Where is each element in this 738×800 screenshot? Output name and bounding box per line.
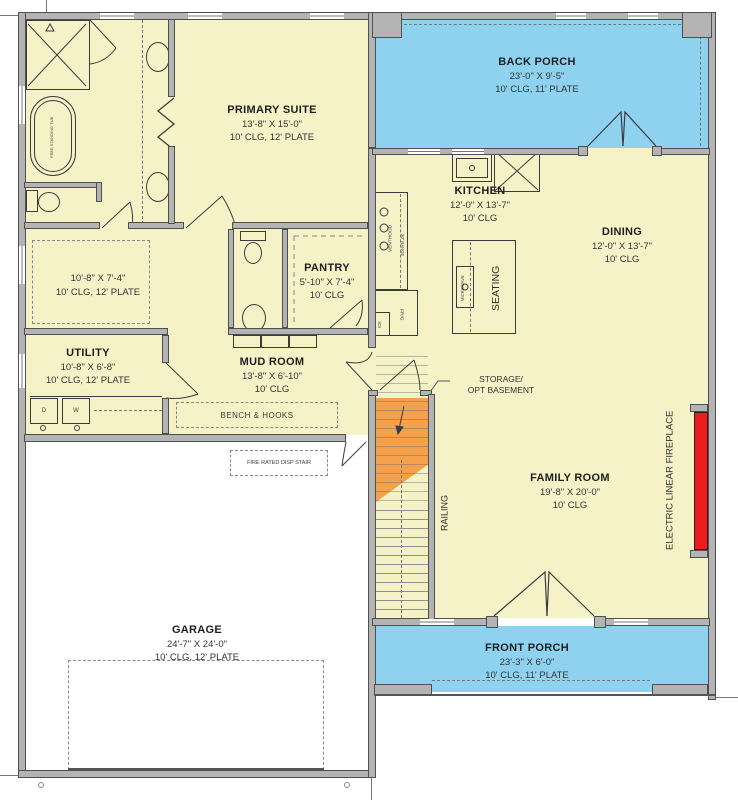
wall-wc-stub (96, 182, 102, 202)
back-door-jamb-left (578, 146, 588, 156)
room-label-primary-bath: 10'-8" X 7'-4" 10' CLG, 12' PLATE (38, 272, 158, 299)
dining-name: DINING (562, 226, 682, 240)
wall-wc-top (24, 182, 102, 188)
back-porch-name: BACK PORCH (437, 56, 637, 70)
front-door-jamb-left (486, 616, 498, 628)
ice-label: ICE (375, 316, 384, 334)
storage-note-line1: STORAGE/ (445, 374, 557, 385)
room-label-back-porch: BACK PORCH 23'-0" X 9'-5" 10' CLG, 11' P… (437, 56, 637, 97)
kitchen-dims: 12'-0" X 13'-7" (420, 199, 540, 213)
family-room-name: FAMILY ROOM (505, 472, 635, 486)
pantry-door (330, 300, 362, 328)
wall-suite-south-c (232, 222, 368, 229)
wall-center-lower (368, 394, 376, 778)
venthood-label: VENTHOOD (386, 214, 396, 262)
kitchen-name: KITCHEN (420, 185, 540, 199)
wall-utility-right-a (162, 335, 169, 363)
kitchen-specs: 10' CLG (420, 212, 540, 226)
window-front-2 (614, 619, 648, 625)
utility-door (166, 363, 198, 399)
back-porch-specs: 10' CLG, 11' PLATE (437, 83, 637, 97)
floor-plan: FREE STANDING TUB D W BENCH & HOOKS FIRE… (0, 0, 738, 800)
room-label-kitchen: KITCHEN 12'-0" X 13'-7" 10' CLG (420, 185, 540, 226)
room-label-pantry: PANTRY 5'-10" X 7'-4" 10' CLG (277, 262, 377, 303)
ext-line-top-left (0, 15, 18, 16)
utility-dims: 10'-8" X 6'-8" (28, 361, 148, 375)
utility-specs: 10' CLG, 12' PLATE (28, 374, 148, 388)
mud-to-garage-door (342, 442, 366, 466)
window-top-5 (628, 13, 658, 19)
front-door-jamb-right (594, 616, 606, 628)
railing-label: RAILING (437, 468, 452, 558)
utility-name: UTILITY (28, 347, 148, 361)
window-left-2 (19, 246, 25, 284)
ext-line-bottom (371, 778, 372, 800)
window-kitchen-2 (452, 149, 484, 154)
wall-garage-bottom (18, 770, 372, 778)
window-left-1 (19, 86, 25, 124)
room-label-garage: GARAGE 24'-7" X 24'-0" 10' CLG, 12' PLAT… (122, 624, 272, 665)
wall-mudroom-north (228, 328, 368, 335)
fireplace-label: ELECTRIC LINEAR FIREPLACE (662, 400, 678, 560)
window-top-4 (556, 13, 586, 19)
footing-mark-right (344, 782, 350, 788)
garage-specs: 10' CLG, 12' PLATE (122, 651, 272, 665)
ext-line-bottom-left (0, 775, 18, 776)
back-porch-french-doors (588, 112, 656, 146)
stair-railing-wall (428, 394, 435, 624)
pantry-dims: 5'-10" X 7'-4" (277, 276, 377, 290)
back-porch-post-left (372, 12, 402, 38)
room-label-front-porch: FRONT PORCH 23'-3" X 6'-0" 10' CLG, 11' … (452, 642, 602, 683)
seating-label: SEATING (486, 246, 506, 330)
wall-right-exterior (708, 12, 716, 700)
family-room-specs: 10' CLG (505, 499, 635, 513)
primary-bath-specs: 10' CLG, 12' PLATE (38, 286, 158, 300)
storage-note-line2: OPT BASEMENT (445, 385, 557, 396)
front-porch-french-doors (494, 572, 594, 616)
mud-room-specs: 10' CLG (207, 383, 337, 397)
primary-bath-dims: 10'-8" X 7'-4" (38, 272, 158, 286)
stair-direction-arrow (396, 406, 404, 434)
back-porch-dims: 23'-0" X 9'-5" (437, 70, 637, 84)
footing-mark-left (38, 782, 44, 788)
primary-suite-specs: 10' CLG, 12' PLATE (187, 131, 357, 145)
primary-suite-name: PRIMARY SUITE (187, 104, 357, 118)
shower-glass-x (28, 20, 116, 86)
front-porch-dims: 23'-3" X 6'-0" (452, 656, 602, 670)
family-room-dims: 19'-8" X 20'-0" (505, 486, 635, 500)
mud-room-dims: 13'-8" X 6'-10" (207, 370, 337, 384)
wall-backporch-house-right (656, 148, 710, 155)
wall-suite-south-a (24, 222, 100, 229)
wall-utility-right-b (162, 398, 169, 434)
wall-garage-north (24, 434, 346, 442)
room-label-primary-suite: PRIMARY SUITE 13'-8" X 15'-0" 10' CLG, 1… (187, 104, 357, 145)
wall-powder-left (228, 229, 234, 328)
vanity-double-door (158, 98, 174, 150)
range-label: 30" RANGE (398, 218, 407, 272)
suite-entry-door (186, 196, 236, 228)
storage-door (380, 360, 420, 390)
window-top-2 (188, 13, 222, 19)
pantry-specs: 10' CLG (277, 289, 377, 303)
window-kitchen-1 (408, 149, 440, 154)
pantry-name: PANTRY (277, 262, 377, 276)
mud-to-family-door (346, 352, 372, 390)
kitchen-sink-drain (470, 166, 475, 171)
wall-left-exterior (18, 12, 26, 778)
window-top-3 (310, 13, 344, 19)
ext-line-right (716, 697, 738, 698)
window-front-1 (420, 619, 454, 625)
room-label-family-room: FAMILY ROOM 19'-8" X 20'-0" 10' CLG (505, 472, 635, 513)
dining-specs: 10' CLG (562, 253, 682, 267)
window-left-3 (19, 354, 25, 388)
wall-closet-south (24, 328, 168, 335)
mud-room-name: MUD ROOM (207, 356, 337, 370)
frig-label: FRIG (396, 300, 406, 330)
garage-name: GARAGE (122, 624, 272, 638)
back-porch-post-right (682, 12, 712, 38)
primary-suite-dims: 13'-8" X 15'-0" (187, 118, 357, 132)
window-top-1 (100, 13, 134, 19)
wall-vanity-lower (168, 146, 175, 224)
ext-line-top (46, 0, 47, 12)
stair-jamb-left (368, 390, 378, 396)
garage-dims: 24'-7" X 24'-0" (122, 638, 272, 652)
wall-suite-south-b (128, 222, 184, 229)
back-door-jamb-right (652, 146, 662, 156)
dining-dims: 12'-0" X 13'-7" (562, 240, 682, 254)
wall-vanity-upper (168, 19, 175, 97)
front-porch-bottom-edge (374, 694, 716, 696)
room-label-utility: UTILITY 10'-8" X 6'-8" 10' CLG, 12' PLAT… (28, 347, 148, 388)
room-label-dining: DINING 12'-0" X 13'-7" 10' CLG (562, 226, 682, 267)
front-porch-name: FRONT PORCH (452, 642, 602, 656)
front-porch-specs: 10' CLG, 11' PLATE (452, 669, 602, 683)
storage-note: STORAGE/ OPT BASEMENT (445, 374, 557, 396)
room-label-mud-room: MUD ROOM 13'-8" X 6'-10" 10' CLG (207, 356, 337, 397)
microwave-label: MICROWAVE (457, 268, 468, 308)
